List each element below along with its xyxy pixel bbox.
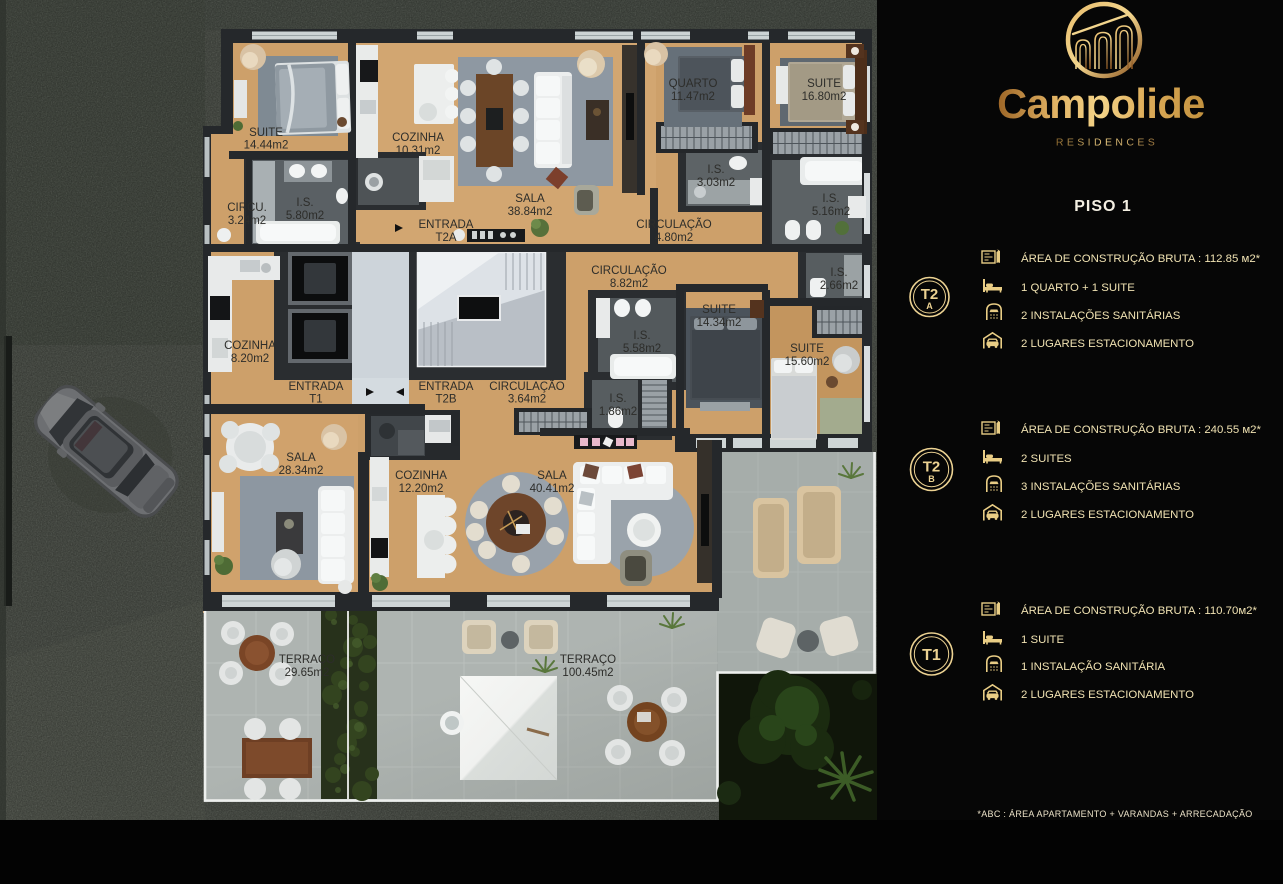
svg-text:CIRCULAÇÃO: CIRCULAÇÃO (636, 218, 711, 231)
svg-text:T2A: T2A (435, 232, 456, 244)
svg-text:ENTRADA: ENTRADA (419, 381, 474, 393)
svg-text:SUITE: SUITE (249, 127, 283, 139)
svg-text:CIRCU.: CIRCU. (227, 202, 267, 214)
svg-text:16.80m2: 16.80m2 (802, 91, 847, 103)
svg-text:A: A (926, 301, 933, 311)
svg-text:2 INSTALAÇÕES SANITÁRIAS: 2 INSTALAÇÕES SANITÁRIAS (1021, 309, 1181, 322)
svg-text:2 LUGARES ESTACIONAMENTO: 2 LUGARES ESTACIONAMENTO (1021, 338, 1194, 350)
svg-text:ENTRADA: ENTRADA (289, 381, 344, 393)
svg-text:COZINHA: COZINHA (224, 340, 276, 352)
svg-text:40.41m2: 40.41m2 (530, 483, 575, 495)
svg-text:14.34m2: 14.34m2 (697, 317, 742, 329)
svg-text:SUITE: SUITE (790, 343, 824, 355)
svg-text:QUARTO: QUARTO (669, 78, 718, 90)
svg-text:ÁREA DE CONSTRUÇÃO BRUTA : 11: ÁREA DE CONSTRUÇÃO BRUTA : 110.70м2* (1021, 604, 1257, 617)
svg-text:38.84m2: 38.84m2 (508, 206, 553, 218)
svg-text:Campolide: Campolide (997, 80, 1205, 127)
svg-text:TERRAÇO: TERRAÇO (560, 654, 616, 666)
svg-text:I.S.: I.S. (296, 197, 313, 209)
svg-text:B: B (928, 474, 935, 484)
svg-text:CIRCULAÇÃO: CIRCULAÇÃO (591, 264, 666, 277)
svg-text:SUITE: SUITE (807, 78, 841, 90)
svg-text:1 QUARTO + 1 SUITE: 1 QUARTO + 1 SUITE (1021, 282, 1135, 294)
svg-text:3.24m2: 3.24m2 (228, 215, 266, 227)
svg-text:14.44m2: 14.44m2 (244, 140, 289, 152)
svg-text:1.86m2: 1.86m2 (599, 406, 637, 418)
svg-text:5.16m2: 5.16m2 (812, 206, 850, 218)
svg-text:T2: T2 (923, 459, 941, 476)
svg-text:COZINHA: COZINHA (392, 132, 444, 144)
svg-text:28.34m2: 28.34m2 (279, 465, 324, 477)
svg-text:2 SUITES: 2 SUITES (1021, 453, 1072, 465)
svg-text:I.S.: I.S. (609, 393, 626, 405)
svg-text:SALA: SALA (537, 470, 567, 482)
svg-text:3.03m2: 3.03m2 (697, 177, 735, 189)
svg-text:*ABC : ÁREA APARTAMENTO + VAR: *ABC : ÁREA APARTAMENTO + VARANDAS + ARR… (977, 809, 1252, 819)
svg-text:I.S.: I.S. (633, 330, 650, 342)
svg-text:RESIDENCES: RESIDENCES (1056, 137, 1158, 149)
svg-text:11.47m2: 11.47m2 (671, 91, 715, 103)
svg-text:PISO 1: PISO 1 (1074, 198, 1132, 215)
svg-text:T1: T1 (922, 647, 941, 664)
svg-text:T1: T1 (309, 394, 322, 406)
svg-text:I.S.: I.S. (707, 164, 724, 176)
svg-text:5.58m2: 5.58m2 (623, 343, 661, 355)
svg-text:10.31m2: 10.31m2 (396, 145, 441, 157)
svg-text:12.20m2: 12.20m2 (399, 483, 444, 495)
svg-text:SUITE: SUITE (702, 304, 736, 316)
svg-text:4.80m2: 4.80m2 (655, 232, 693, 244)
svg-text:1 INSTALAÇÃO SANITÁRIA: 1 INSTALAÇÃO SANITÁRIA (1021, 660, 1166, 673)
svg-text:T2B: T2B (435, 394, 456, 406)
svg-text:5.80m2: 5.80m2 (286, 210, 324, 222)
svg-text:100.45m2: 100.45m2 (562, 667, 613, 679)
svg-text:15.60m2: 15.60m2 (785, 356, 830, 368)
svg-text:3 INSTALAÇÕES SANITÁRIAS: 3 INSTALAÇÕES SANITÁRIAS (1021, 480, 1181, 493)
svg-text:COZINHA: COZINHA (395, 470, 447, 482)
svg-text:2 LUGARES ESTACIONAMENTO: 2 LUGARES ESTACIONAMENTO (1021, 689, 1194, 701)
svg-text:1 SUITE: 1 SUITE (1021, 634, 1064, 646)
svg-text:29.65m2: 29.65m2 (285, 667, 330, 679)
svg-text:SALA: SALA (515, 193, 545, 205)
svg-text:ÁREA DE CONSTRUÇÃO BRUTA : 11: ÁREA DE CONSTRUÇÃO BRUTA : 112.85 м2* (1021, 252, 1261, 265)
svg-text:8.82m2: 8.82m2 (610, 278, 648, 290)
svg-text:2.66m2: 2.66m2 (820, 280, 858, 292)
svg-text:SALA: SALA (286, 452, 316, 464)
svg-text:8.20m2: 8.20m2 (231, 353, 269, 365)
svg-text:I.S.: I.S. (822, 193, 839, 205)
svg-text:TERRAÇO: TERRAÇO (279, 654, 335, 666)
svg-text:I.S.: I.S. (830, 267, 847, 279)
svg-text:CIRCULAÇÃO: CIRCULAÇÃO (489, 380, 564, 393)
svg-text:ÁREA DE CONSTRUÇÃO BRUTA : 24: ÁREA DE CONSTRUÇÃO BRUTA : 240.55 м2* (1021, 423, 1262, 436)
svg-text:3.64m2: 3.64m2 (508, 394, 546, 406)
svg-text:ENTRADA: ENTRADA (419, 219, 474, 231)
svg-text:2 LUGARES ESTACIONAMENTO: 2 LUGARES ESTACIONAMENTO (1021, 509, 1194, 521)
